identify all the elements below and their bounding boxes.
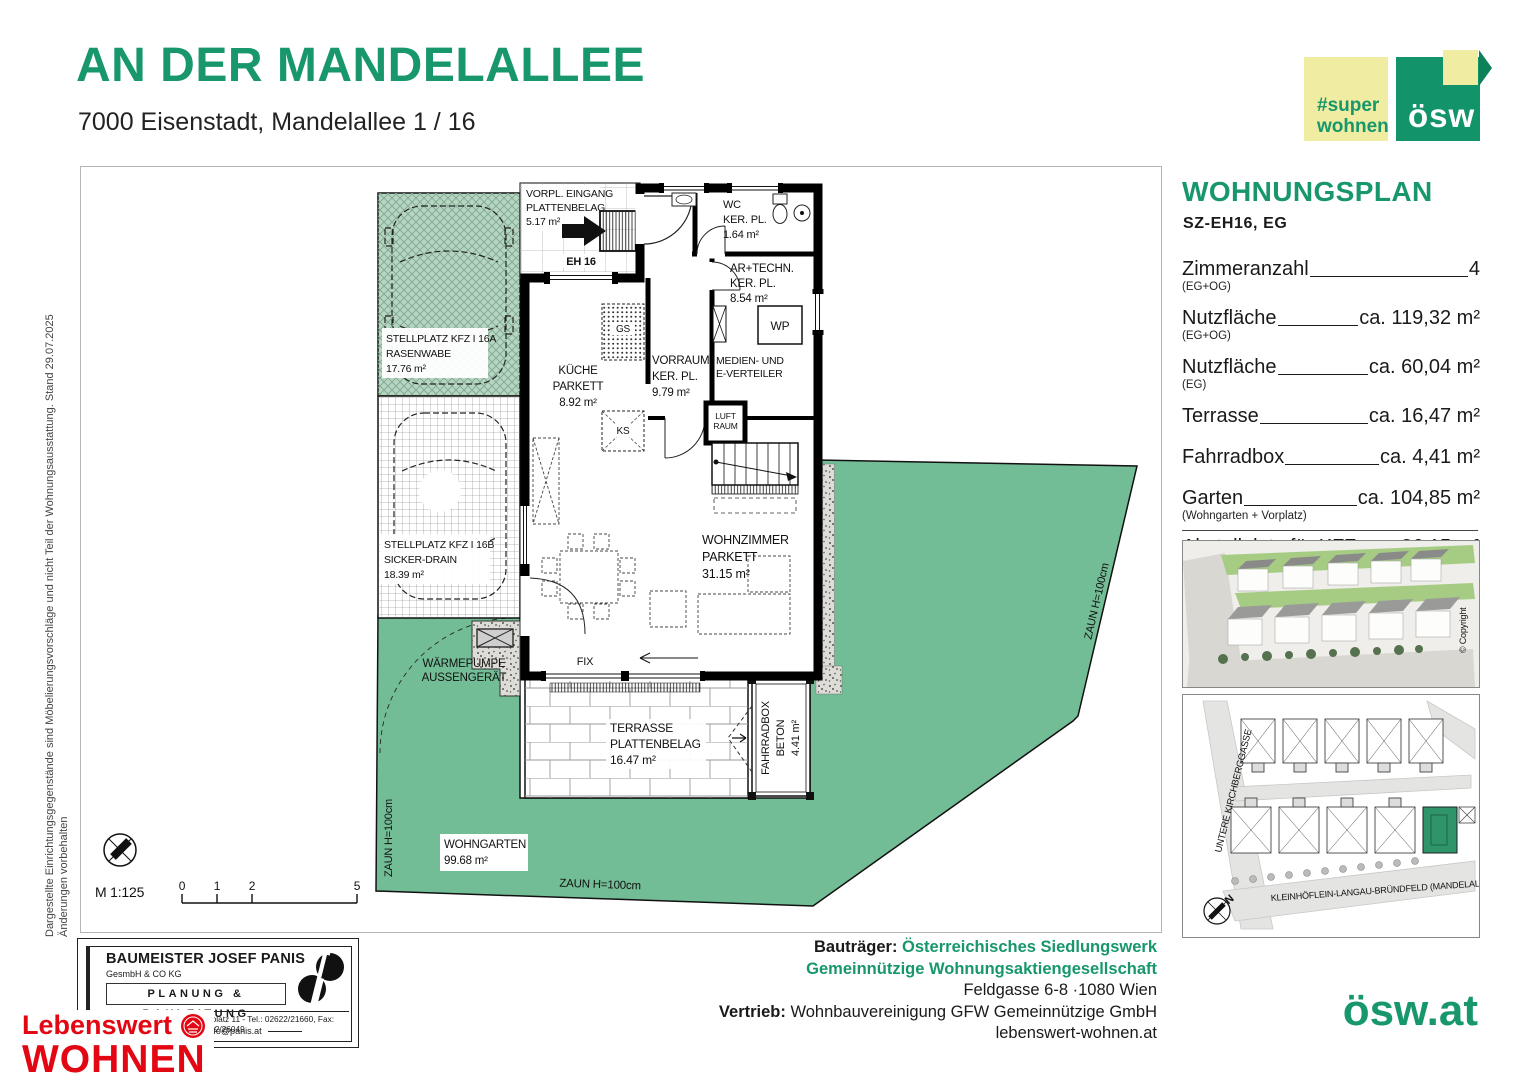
jp-logo-icon [297, 949, 345, 1007]
leader-line [1244, 505, 1357, 506]
label-eh16: EH 16 [566, 256, 596, 268]
label-fahrradbox-line3: 4.41 m² [790, 720, 802, 756]
label-artechn-line3: 8.54 m² [730, 293, 768, 305]
label-wohnzimmer-line2: PARKETT [702, 550, 758, 564]
architect-dept: PLANUNG & BAULEITUNG [106, 983, 286, 1005]
label-terrasse-line3: 16.47 m² [610, 753, 656, 767]
website-link: lebenswert-wohnen.at [700, 1023, 1157, 1045]
label-medien-line2: E-VERTEILER [716, 368, 783, 380]
oesw-website: ösw.at [1296, 986, 1478, 1036]
leader-line [1278, 374, 1368, 375]
stellplatz-b: STELLPLATZ KFZ I 16B SICKER-DRAIN 18.39 … [378, 396, 520, 618]
label-luftraum-line2: RAUM [713, 421, 737, 431]
label-vorraum-line2: KER. PL. [652, 371, 698, 383]
spec-value: ca. 16,47 m² [1369, 405, 1480, 428]
label-waermepumpe-line1: WÄRMEPUMPE [423, 658, 507, 670]
spec-label: Nutzfläche [1182, 307, 1277, 330]
label-luftraum-line1: LUFT [715, 411, 735, 421]
label-kueche-line1: KÜCHE [558, 365, 598, 377]
label-wohnzimmer-line1: WOHNZIMMER [702, 533, 789, 547]
label-ks: KS [617, 426, 630, 437]
label-vorraum-line1: VORRAUM [652, 355, 709, 367]
label-wc-line3: 1.64 m² [723, 229, 759, 241]
lebenswert-wohnen-logo: Lebenswert WOHNEN [18, 1010, 214, 1083]
page-subtitle: 7000 Eisenstadt, Mandelallee 1 / 16 [78, 108, 476, 137]
bautraeger-address: Feldgasse 6-8 ·1080 Wien [700, 980, 1157, 1002]
spec-row-fahrradbox: Fahrradboxca. 4,41 m² [1182, 446, 1480, 473]
scale-tick-1: 1 [214, 879, 221, 893]
spec-value: ca. 104,85 m² [1358, 487, 1480, 510]
oesw-cube-icon [1443, 50, 1478, 85]
floor-plan: WÄRMEPUMPE AUSSENGERÄT STELLPLATZ KFZ I … [80, 166, 1162, 934]
label-wohngarten-line2: 99.68 m² [444, 855, 488, 867]
panel-unit-id: SZ-EH16, EG [1183, 215, 1287, 233]
vertrieb-label: Vertrieb: [719, 1003, 791, 1021]
spec-row-nutzflaeche-eg: Nutzflächeca. 60,04 m² (EG) [1182, 356, 1480, 391]
label-wc-line2: KER. PL. [723, 214, 767, 226]
leader-line [1260, 423, 1368, 424]
spec-label: Nutzfläche [1182, 356, 1277, 379]
lebenswert-text: Lebenswert [22, 1012, 172, 1039]
compass-icon [104, 834, 136, 866]
spec-row-garten: Gartenca. 104,85 m² (Wohngarten + Vorpla… [1182, 487, 1480, 522]
developer-info: Bauträger: Österreichisches Siedlungswer… [700, 937, 1157, 1045]
label-artechn-line2: KER. PL. [730, 278, 776, 290]
scale-tick-0: 0 [179, 879, 186, 893]
panel-divider [1182, 530, 1478, 531]
label-stellplatz-a-line2: RASENWABE [386, 348, 451, 360]
spec-value: ca. 60,04 m² [1369, 356, 1480, 379]
leader-line [1285, 464, 1379, 465]
spec-label: Fahrradbox [1182, 446, 1284, 469]
spec-label: Garten [1182, 487, 1243, 510]
bautraeger-name: Österreichisches Siedlungswerk [902, 938, 1157, 956]
oesw-logo-text: ösw [1408, 97, 1475, 135]
spec-row-zimmeranzahl: Zimmeranzahl4 (EG+OG) [1182, 258, 1480, 293]
label-vorplatz-line2: PLATTENBELAG [526, 202, 605, 214]
scale-tick-5: 5 [354, 879, 361, 893]
label-stellplatz-a-line1: STELLPLATZ KFZ I 16A [386, 333, 496, 345]
spec-sub: (EG) [1182, 379, 1480, 391]
label-vorplatz-line1: VORPL. EINGANG [526, 188, 613, 200]
spec-label: Zimmeranzahl [1182, 258, 1309, 281]
label-terrasse-line1: TERRASSE [610, 721, 673, 735]
scale-bar: 0 1 2 5 [179, 879, 361, 903]
lebenswert-badge-icon [180, 1013, 206, 1039]
label-kueche-line3: 8.92 m² [559, 397, 597, 409]
architect-company-form: GesmbH & CO KG [106, 969, 182, 979]
site-plan-image: UNTERE KIRCHBERGGASSE KLEINHÖFLEIN-LANGA… [1182, 694, 1480, 938]
leader-line [1278, 325, 1359, 326]
spec-sub [1182, 428, 1480, 432]
label-wc-line1: WC [723, 199, 741, 211]
spec-sub: (EG+OG) [1182, 330, 1480, 342]
spec-value: 4 [1469, 258, 1480, 281]
vorplatz-area: VORPL. EINGANG PLATTENBELAG 5.17 m² EH 1… [520, 183, 640, 278]
dash-right [268, 1031, 302, 1032]
label-waermepumpe-line2: AUSSENGERÄT [422, 672, 507, 684]
wohnen-text: WOHNEN [22, 1040, 206, 1079]
label-vorplatz-line3: 5.17 m² [526, 216, 561, 228]
label-wp: WP [771, 319, 790, 333]
label-terrasse-line2: PLATTENBELAG [610, 737, 701, 751]
label-fahrradbox-line1: FAHRRADBOX [760, 700, 772, 775]
label-fahrradbox-line2: BETON [775, 719, 787, 756]
superwohnen-line1: #super [1317, 95, 1379, 116]
label-stellplatz-b-line3: 18.39 m² [384, 569, 425, 581]
page-title: AN DER MANDELALLEE [76, 38, 645, 93]
spec-sub [1182, 469, 1480, 473]
stellplatz-a: STELLPLATZ KFZ I 16A RASENWABE 17.76 m² [378, 193, 520, 396]
spec-sub: (Wohngarten + Vorplatz) [1182, 510, 1480, 522]
label-medien-line1: MEDIEN- UND [716, 355, 784, 367]
drain-circle [419, 470, 461, 512]
aerial-render-image: © Copyright [1182, 540, 1480, 688]
bautraeger-name2: Gemeinnützige Wohnungsaktiengesellschaft [700, 959, 1157, 981]
label-vorraum-line3: 9.79 m² [652, 387, 690, 399]
spec-row-terrasse: Terrasseca. 16,47 m² [1182, 405, 1480, 432]
oesw-logo: ösw [1396, 57, 1480, 141]
superwohnen-line2: wohnen [1317, 116, 1389, 137]
label-gs: GS [616, 324, 631, 335]
spec-list: Zimmeranzahl4 (EG+OG) Nutzflächeca. 119,… [1182, 258, 1480, 585]
oesw-cube-fold-icon [1479, 50, 1492, 86]
label-stellplatz-a-line3: 17.76 m² [386, 363, 427, 375]
bautraeger-label: Bauträger: [814, 938, 902, 956]
label-fix: FIX [577, 656, 594, 668]
label-artechn-line1: AR+TECHN. [730, 263, 794, 275]
architect-name: BAUMEISTER JOSEF PANIS [106, 951, 305, 967]
label-stellplatz-b-line2: SICKER-DRAIN [384, 554, 457, 566]
side-note-line2: Änderungen vorbehalten [58, 817, 70, 937]
spec-sub: (EG+OG) [1182, 281, 1480, 293]
label-wohnzimmer-line3: 31.15 m² [702, 567, 750, 581]
label-zaun-left: ZAUN H=100cm [383, 799, 395, 877]
panel-title: WOHNUNGSPLAN [1182, 176, 1433, 208]
spec-label: Terrasse [1182, 405, 1259, 428]
spec-value: ca. 119,32 m² [1359, 307, 1480, 330]
scale-tick-2: 2 [249, 879, 256, 893]
leader-line [1310, 276, 1468, 277]
side-note-line1: Dargestellte Einrichtungsgegenstände sin… [44, 314, 56, 937]
copyright-label: © Copyright [1458, 607, 1468, 653]
terrace-area: TERRASSE PLATTENBELAG 16.47 m² [525, 678, 748, 798]
label-stellplatz-b-line1: STELLPLATZ KFZ I 16B [384, 539, 494, 551]
label-wohngarten-line1: WOHNGARTEN [444, 839, 526, 851]
spec-value: ca. 4,41 m² [1380, 446, 1480, 469]
spec-row-nutzflaeche-gesamt: Nutzflächeca. 119,32 m² (EG+OG) [1182, 307, 1480, 342]
scale-label: M 1:125 [95, 884, 145, 900]
vertrieb-name: Wohnbauvereinigung GFW Gemeinnützige Gmb… [790, 1003, 1157, 1021]
label-kueche-line2: PARKETT [553, 381, 604, 393]
superwohnen-logo: #super wohnen [1304, 57, 1388, 141]
